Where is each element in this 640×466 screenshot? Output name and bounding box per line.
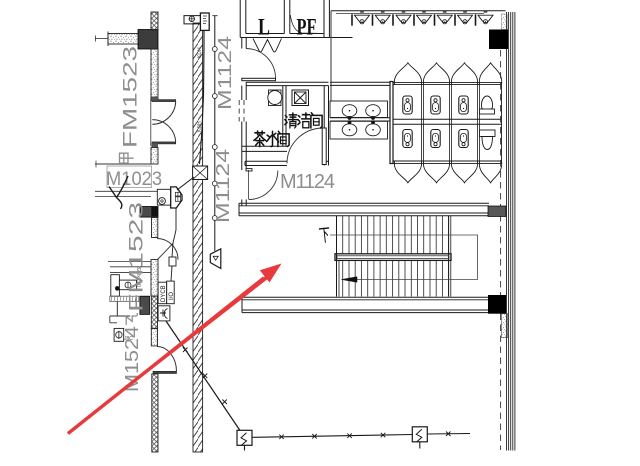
svg-text:L: L bbox=[258, 15, 270, 41]
svg-text:PF: PF bbox=[297, 15, 317, 40]
svg-text:M1124: M1124 bbox=[213, 149, 233, 223]
svg-text:DYCB: DYCB bbox=[161, 285, 167, 302]
svg-text:FM1523: FM1523 bbox=[127, 202, 148, 312]
svg-text:FM1523: FM1523 bbox=[121, 46, 142, 148]
svg-text:M1124: M1124 bbox=[280, 171, 335, 193]
svg-text:KDH: KDH bbox=[197, 121, 203, 132]
svg-text:KDH: KDH bbox=[197, 47, 203, 58]
svg-text:I/O: I/O bbox=[169, 292, 175, 300]
svg-text:M1124: M1124 bbox=[215, 36, 235, 110]
svg-text:M1023: M1023 bbox=[106, 168, 162, 190]
